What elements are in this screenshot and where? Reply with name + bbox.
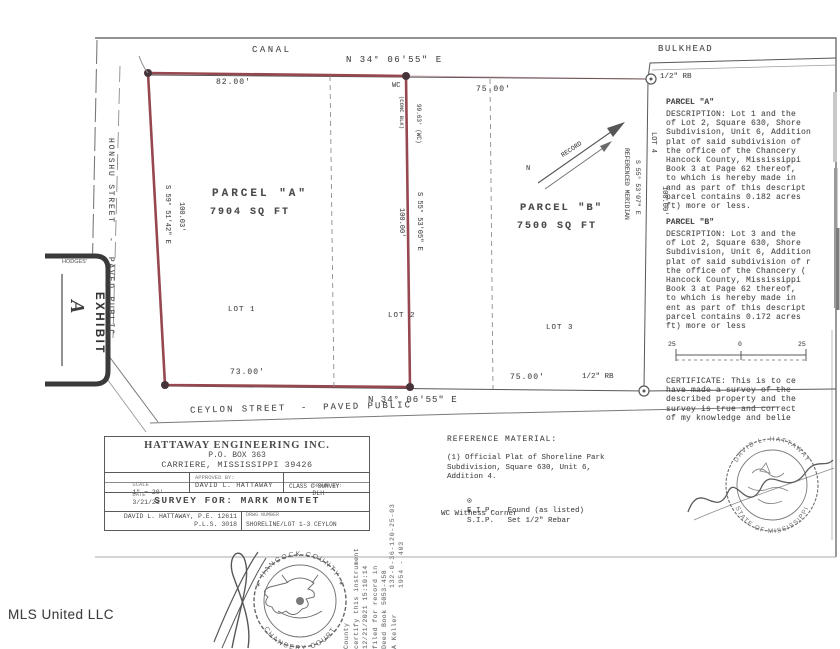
reference-item-1: (1) Official Plat of Shoreline Park Subd…	[447, 454, 647, 483]
right-boundary-line	[644, 80, 648, 390]
scale-zero-label: 0	[738, 341, 742, 348]
parcel-b-area: 7500 SQ FT	[517, 221, 597, 232]
exhibit-letter: A	[66, 300, 88, 313]
conc-blk-label: (CONC BLK)	[398, 96, 404, 129]
scale-right-label: 25	[798, 341, 806, 348]
bulkhead-label: BULKHEAD	[658, 44, 713, 54]
dim-top-right: 75.00'	[476, 86, 511, 95]
survey-plat-page: DAVID L. HATTAWAY STATE OF MISSISSIPPI ✶…	[0, 0, 840, 649]
exhibit-brand: HODGES'	[62, 259, 87, 265]
drwg-number-label: DRWG NUMBER	[246, 513, 279, 519]
mid-line-distance: 100.00'	[396, 208, 404, 237]
top-bearing-label: N 34° 06'55" E	[346, 55, 443, 65]
canal-label: CANAL	[252, 45, 292, 55]
sip-text: S.I.P. Set 1/2" Rebar	[467, 517, 571, 525]
title-block: HATTAWAY ENGINEERING INC. P.O. BOX 363 C…	[104, 436, 370, 531]
parcel-b-desc-title: PARCEL "B"	[666, 219, 714, 228]
rebar-bottom-label: 1/2" RB	[582, 373, 614, 381]
approved-by-value: DAVID L. HATTAWAY	[195, 483, 273, 491]
corner-tick	[139, 56, 148, 73]
scale-left-label: 25	[668, 341, 676, 348]
lot3-label: LOT 3	[546, 324, 574, 332]
clerk-signature	[214, 552, 266, 648]
pe-number: DAVID L. HATTAWAY, P.E. 12611	[107, 513, 237, 520]
certificate-text: CERTIFICATE: This is to ce have made a s…	[666, 377, 840, 423]
company-name: HATTAWAY ENGINEERING INC.	[105, 440, 369, 452]
county-seal: ✶ HANCOCK COUNTY ✶ CHANCERY COURT	[254, 551, 346, 649]
class-value: CLASS C SURVEY	[289, 484, 339, 491]
dim-bottom-left: 73.00'	[230, 369, 265, 378]
parcel-a-desc-title: PARCEL "A"	[666, 99, 714, 108]
fip-marker-top	[646, 74, 656, 84]
parcel-b-name: PARCEL "B"	[520, 203, 603, 215]
approved-by-label: APPROVED BY:	[195, 475, 235, 481]
surveyor-seal: DAVID L. HATTAWAY STATE OF MISSISSIPPI	[726, 436, 818, 535]
parcel-b-desc-body: DESCRIPTION: Lot 3 and the of Lot 2, Squ…	[666, 230, 840, 331]
scale-bar	[676, 349, 806, 361]
parcel-id-stamp: 132-0-36-120-25-03 1954 - 403	[388, 474, 406, 588]
north-arrow-record	[538, 122, 625, 189]
parcel-a-area: 7904 SQ FT	[210, 207, 290, 218]
lot-line-1-2	[330, 76, 334, 387]
left-line-distance: 100.03'	[176, 202, 184, 231]
legend-wc-row: WC Witness Corner	[441, 510, 518, 518]
lot-line-2-3	[490, 79, 493, 389]
survey-for: SURVEY FOR: MARK MONTET	[105, 496, 369, 507]
drwg-number-value: SHORELINE/LOT 1-3 CEYLON	[246, 521, 337, 528]
fip-marker-bottom	[639, 386, 649, 396]
honshu-street-label: HONSHU STREET - PAVED PUBLIC	[105, 138, 114, 336]
dim-bottom-right: 75.00'	[510, 374, 545, 383]
parcel-a-outline	[148, 73, 410, 387]
referenced-meridian-label: REFERENCED MERIDIAN	[623, 148, 630, 220]
north-label: N	[526, 166, 530, 174]
wc-label: WC	[392, 83, 400, 91]
reference-heading: REFERENCE MATERIAL:	[447, 436, 557, 445]
right-line-bearing: S 55° 53'07" E	[634, 160, 641, 215]
lot1-label: LOT 1	[228, 306, 256, 314]
bottom-bearing-label: N 34° 06'55" E	[368, 395, 458, 405]
county-seal-crest	[264, 575, 322, 618]
company-address-2: CARRIERE, MISSISSIPPI 39426	[105, 461, 369, 471]
parcel-a-desc-body: DESCRIPTION: Lot 1 and the of Lot 2, Squ…	[666, 110, 840, 211]
parcel-a-name: PARCEL "A"	[212, 188, 308, 200]
watermark: MLS United LLC	[8, 607, 114, 622]
pls-number: P.L.S. 3018	[107, 521, 237, 528]
lot2-label: LOT 2	[388, 312, 416, 320]
lot4-label: LOT 4	[648, 132, 656, 153]
exhibit-label: EXHIBIT	[92, 292, 105, 355]
dim-top-left: 82.00'	[216, 79, 251, 88]
wc-dim-label: 99.63' (WC)	[414, 104, 421, 144]
rebar-top-label: 1/2" RB	[660, 73, 692, 81]
left-line-bearing: S 59° 51'42" E	[162, 185, 170, 244]
mid-line-bearing: S 55° 53'05" E	[414, 192, 422, 251]
